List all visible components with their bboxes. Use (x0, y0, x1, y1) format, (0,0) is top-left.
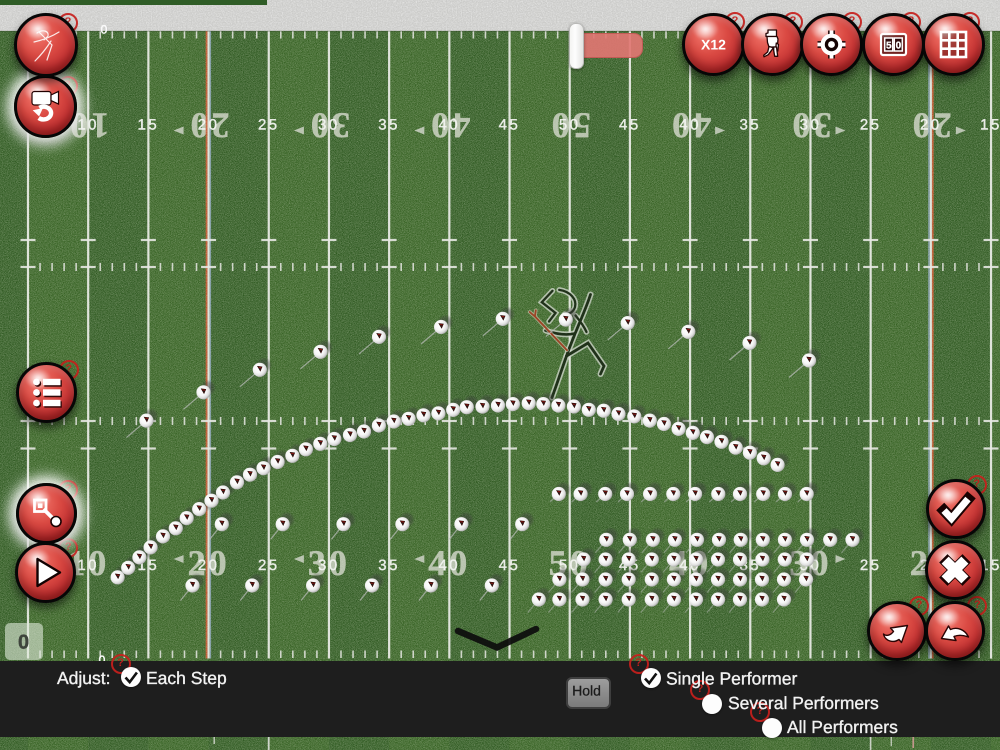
svg-text:Single Performer: Single Performer (666, 669, 797, 689)
svg-text:0: 0 (18, 632, 29, 654)
svg-text:Several Performers: Several Performers (728, 693, 879, 713)
svg-text:Each Step: Each Step (146, 668, 227, 688)
svg-text:Hold: Hold (572, 683, 601, 699)
svg-text:Adjust:: Adjust: (57, 668, 111, 688)
svg-text:All Performers: All Performers (787, 717, 898, 737)
